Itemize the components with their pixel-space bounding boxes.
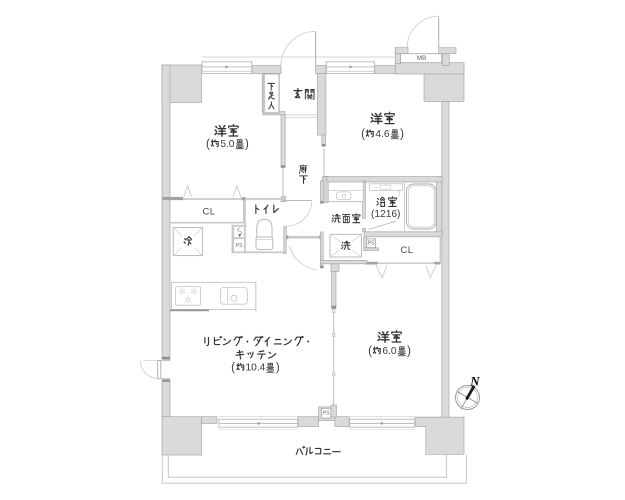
svg-text:4.6: 4.6	[375, 129, 389, 140]
svg-text:): )	[400, 129, 404, 141]
svg-text:CL: CL	[203, 206, 216, 217]
svg-text:MB: MB	[417, 55, 427, 62]
svg-text:(: (	[361, 129, 365, 141]
svg-text:PS: PS	[368, 240, 375, 246]
svg-text:(: (	[231, 362, 235, 374]
svg-text:): )	[407, 346, 411, 358]
svg-text:): )	[245, 138, 249, 150]
svg-text:(1216): (1216)	[371, 209, 400, 220]
svg-text:): )	[276, 362, 280, 374]
svg-text:N: N	[469, 374, 480, 389]
svg-text:(: (	[368, 346, 372, 358]
svg-text:(: (	[206, 138, 210, 150]
svg-text:PS: PS	[323, 410, 330, 416]
svg-text:10.4: 10.4	[245, 363, 265, 374]
svg-text:PS: PS	[236, 243, 243, 249]
svg-text:6.0: 6.0	[382, 346, 396, 357]
svg-text:CL: CL	[401, 245, 414, 256]
svg-text:5.0: 5.0	[220, 139, 234, 150]
